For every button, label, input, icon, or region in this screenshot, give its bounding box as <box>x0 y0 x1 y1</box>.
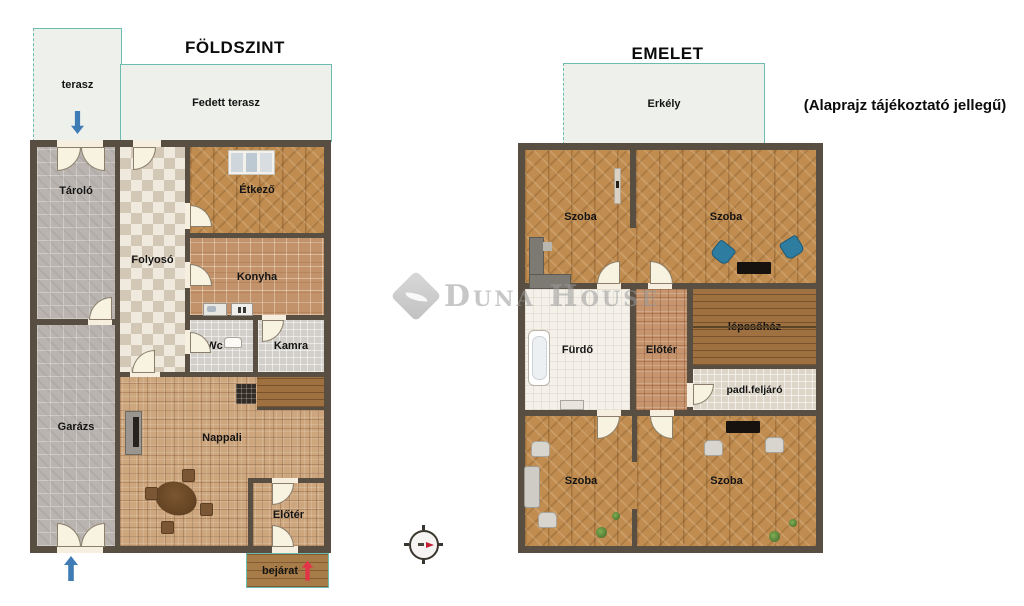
balcony-label: Erkély <box>647 98 680 110</box>
tv-cabinet <box>125 411 142 455</box>
balcony-area: Erkély <box>563 63 765 145</box>
dining-chair <box>145 487 158 500</box>
stairs-mid-line <box>693 326 816 328</box>
tarolo-entry-opening <box>57 140 103 147</box>
terrace-label: terasz <box>62 79 94 91</box>
duna-house-logo-icon <box>391 271 442 322</box>
kitchen-stove <box>231 303 253 316</box>
ground-stairs-platform <box>257 377 324 410</box>
room-tarolo: Tároló <box>37 147 115 319</box>
dining-chair <box>182 469 195 482</box>
covered-terrace-label: Fedett terasz <box>192 97 260 109</box>
szoba-tr-label: Szoba <box>710 211 742 223</box>
folyoso-entry-opening <box>133 140 161 147</box>
garage-entry-arrow-icon <box>64 556 78 581</box>
desk-chair <box>543 242 552 251</box>
covered-terrace-area: Fedett terasz <box>120 64 332 142</box>
plant <box>769 531 780 542</box>
garazs-door-opening <box>57 546 103 553</box>
padl-feljaro-label: padl.feljáró <box>726 384 782 396</box>
room-folyoso: Folyosó <box>120 147 185 372</box>
upper-floor-title: EMELET <box>560 44 775 64</box>
compass-tick-west <box>404 543 409 546</box>
tv-bench <box>726 421 760 433</box>
top-bedrooms-divider-wall <box>630 150 636 228</box>
armchair-light <box>531 441 550 457</box>
armchair-light <box>765 437 784 453</box>
armchair-light <box>538 512 557 528</box>
folyoso-label: Folyosó <box>131 254 173 266</box>
desk-horizontal <box>529 274 571 289</box>
compass-tick-north <box>422 525 425 530</box>
bathroom-sink <box>560 400 584 410</box>
eloter-bottom-opening <box>272 546 298 553</box>
szoba-tl-label: Szoba <box>564 211 596 223</box>
szoba-bl-label: Szoba <box>565 475 597 487</box>
compass-center <box>418 543 424 546</box>
garazs-label: Garázs <box>58 421 95 433</box>
floor-plan-page: FÖLDSZINT terasz Fedett terasz Tároló Ga… <box>0 0 1024 606</box>
plant <box>789 519 797 527</box>
shelf <box>614 168 621 204</box>
dining-chair <box>200 503 213 516</box>
bathtub-basin <box>532 336 547 380</box>
konyha-label: Konyha <box>237 271 277 283</box>
dining-chair <box>161 521 174 534</box>
logo-leaf-icon <box>405 293 427 302</box>
compass-tick-east <box>438 543 443 546</box>
szoba-br-label: Szoba <box>710 475 742 487</box>
tv-screen <box>133 417 139 447</box>
toilet <box>224 337 242 348</box>
shelf-item <box>616 181 619 188</box>
bathtub <box>528 330 550 386</box>
eloter-upper-label: Előtér <box>646 344 677 356</box>
sideboard-panel <box>260 153 272 172</box>
eloter-ground-label: Előtér <box>273 509 304 521</box>
entrance-deck: bejárat <box>246 553 329 588</box>
armchair-light <box>704 440 723 456</box>
tarolo-label: Tároló <box>59 185 93 197</box>
ground-floor-title: FÖLDSZINT <box>140 38 330 58</box>
compass-tick-south <box>422 559 425 564</box>
furdo-label: Fürdő <box>562 344 593 356</box>
bottom-bedrooms-divider-wall-lower <box>632 509 637 546</box>
entrance-label: bejárat <box>262 565 298 577</box>
sink-basin <box>207 306 216 312</box>
bottom-bedrooms-divider-wall-upper <box>632 416 637 462</box>
kitchen-sink <box>203 303 227 316</box>
compass-rose-icon <box>409 530 439 560</box>
tv-bench <box>737 262 771 274</box>
sofa <box>524 466 540 508</box>
nappali-label: Nappali <box>202 432 242 444</box>
plan-disclaimer: (Alaprajz tájékoztató jellegű) <box>790 97 1020 114</box>
stove-burner <box>243 307 246 313</box>
etkezo-label: Étkező <box>239 184 274 196</box>
stove-burner <box>238 307 241 313</box>
wood-stove <box>236 384 256 404</box>
sideboard-panel <box>231 153 243 172</box>
entrance-arrow-icon <box>302 561 313 581</box>
plant <box>596 527 607 538</box>
kamra-label: Kamra <box>274 340 308 352</box>
compass-needle <box>426 542 434 548</box>
etkezo-sideboard <box>228 150 275 175</box>
sideboard-panel <box>246 153 258 172</box>
plant <box>612 512 620 520</box>
room-garazs: Garázs <box>37 325 115 546</box>
room-eloter-upper: Előtér <box>636 289 687 410</box>
